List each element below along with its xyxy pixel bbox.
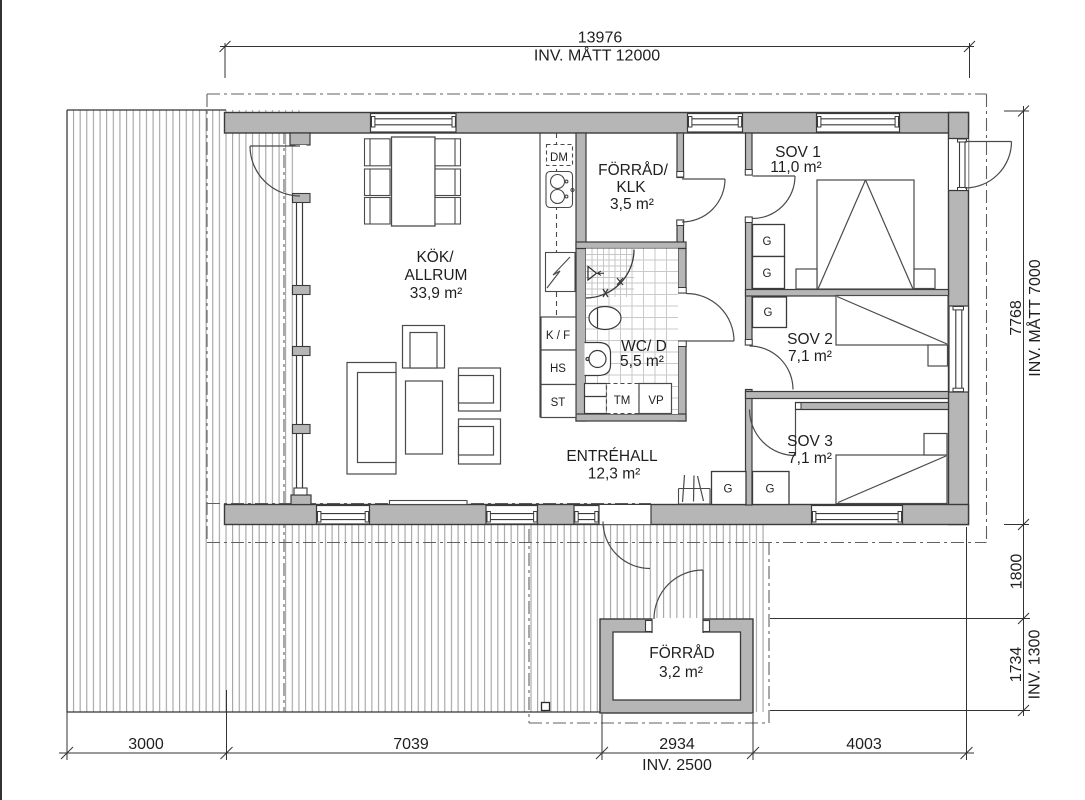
svg-text:DM: DM <box>550 152 568 164</box>
svg-text:3,2 m²: 3,2 m² <box>659 664 703 681</box>
svg-text:4003: 4003 <box>846 736 882 753</box>
svg-text:3000: 3000 <box>128 736 164 753</box>
svg-text:SOV 2: SOV 2 <box>787 331 833 348</box>
svg-text:ENTRÉHALL: ENTRÉHALL <box>566 448 658 465</box>
svg-text:FÖRRÅD: FÖRRÅD <box>649 644 714 662</box>
svg-text:13976: 13976 <box>578 30 623 47</box>
svg-text:3,5 m²: 3,5 m² <box>610 196 654 213</box>
svg-text:INV. MÅTT 12000: INV. MÅTT 12000 <box>534 46 660 65</box>
svg-text:7,1 m²: 7,1 m² <box>788 348 832 365</box>
svg-text:INV. 2500: INV. 2500 <box>642 757 712 774</box>
svg-text:G: G <box>763 236 772 248</box>
svg-text:1800: 1800 <box>1009 554 1026 590</box>
svg-text:2934: 2934 <box>659 736 695 753</box>
svg-text:INV. 1300: INV. 1300 <box>1027 630 1044 700</box>
svg-text:G: G <box>724 484 733 496</box>
svg-text:KLK: KLK <box>616 179 646 196</box>
svg-text:1734: 1734 <box>1008 647 1025 683</box>
svg-text:SOV 3: SOV 3 <box>787 433 833 450</box>
svg-text:G: G <box>766 484 775 496</box>
svg-text:G: G <box>763 268 772 280</box>
svg-text:TM: TM <box>614 395 631 407</box>
svg-text:7,1 m²: 7,1 m² <box>788 450 832 467</box>
svg-text:ST: ST <box>551 397 566 409</box>
svg-text:7768: 7768 <box>1008 300 1025 336</box>
svg-text:FÖRRÅD/: FÖRRÅD/ <box>598 161 668 179</box>
svg-text:7039: 7039 <box>393 736 429 753</box>
svg-text:12,3 m²: 12,3 m² <box>588 466 641 483</box>
svg-text:KÖK/: KÖK/ <box>416 248 454 266</box>
svg-text:33,9 m²: 33,9 m² <box>410 285 463 302</box>
svg-text:ALLRUM: ALLRUM <box>405 267 468 284</box>
svg-text:G: G <box>764 307 773 319</box>
svg-text:INV. MÅTT 7000: INV. MÅTT 7000 <box>1025 259 1044 376</box>
svg-text:VP: VP <box>648 395 664 407</box>
svg-text:K / F: K / F <box>546 330 570 342</box>
svg-text:HS: HS <box>550 363 566 375</box>
svg-text:11,0 m²: 11,0 m² <box>770 159 821 176</box>
svg-text:5,5 m²: 5,5 m² <box>620 353 664 370</box>
